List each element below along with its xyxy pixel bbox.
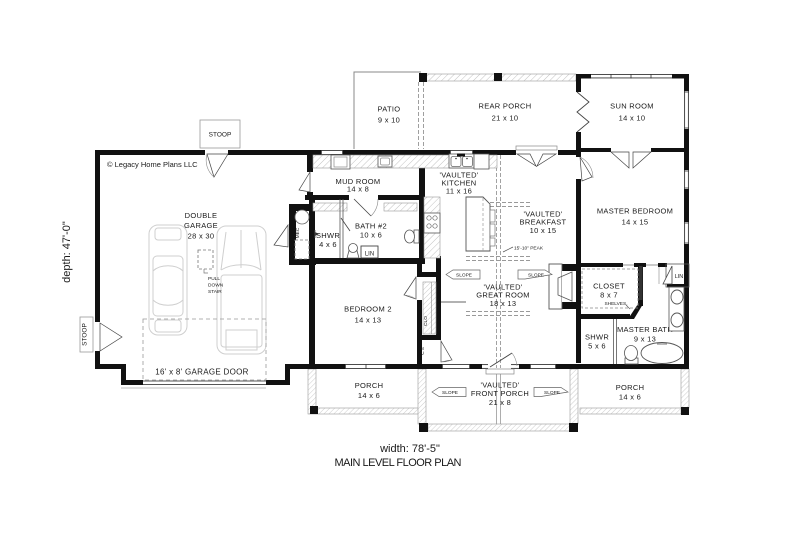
svg-text:8 x 7: 8 x 7 (600, 291, 618, 300)
svg-text:C'S: C'S (420, 347, 426, 355)
svg-text:© Legacy Home Plans LLC: © Legacy Home Plans LLC (107, 160, 198, 169)
svg-text:STAIR: STAIR (208, 289, 222, 295)
svg-text:MAIN LEVEL FLOOR PLAN: MAIN LEVEL FLOOR PLAN (335, 457, 462, 469)
svg-text:PATIO: PATIO (378, 105, 401, 114)
svg-text:BEDROOM 2: BEDROOM 2 (344, 305, 392, 314)
svg-text:GARAGE: GARAGE (184, 221, 218, 230)
svg-text:15'-10" PEAK: 15'-10" PEAK (514, 246, 544, 252)
svg-text:16' x 8' GARAGE DOOR: 16' x 8' GARAGE DOOR (155, 368, 249, 377)
svg-text:DOUBLE: DOUBLE (185, 211, 218, 220)
svg-text:depth: 47'-0": depth: 47'-0" (61, 221, 73, 283)
svg-text:SLOPE: SLOPE (544, 390, 560, 396)
svg-text:21 x 10: 21 x 10 (492, 114, 519, 123)
svg-text:21 x 8: 21 x 8 (489, 398, 511, 407)
svg-text:SLOPE: SLOPE (456, 272, 472, 278)
svg-text:4 x 6: 4 x 6 (319, 240, 337, 249)
svg-text:9 x 13: 9 x 13 (634, 335, 656, 344)
svg-text:14 x 15: 14 x 15 (622, 218, 649, 227)
svg-text:18 x 13: 18 x 13 (490, 299, 517, 308)
svg-text:14 x 6: 14 x 6 (358, 391, 380, 400)
svg-text:BATH #2: BATH #2 (355, 222, 387, 231)
svg-text:11 x 16: 11 x 16 (446, 187, 472, 196)
svg-text:width: 78'-5": width: 78'-5" (379, 443, 440, 455)
svg-text:STOOP: STOOP (82, 323, 89, 346)
svg-text:PULL: PULL (208, 276, 220, 282)
svg-text:14 x 6: 14 x 6 (619, 393, 641, 402)
svg-text:SLOPE: SLOPE (442, 390, 458, 396)
svg-text:CLO: CLO (423, 316, 429, 326)
svg-text:PORCH: PORCH (616, 383, 645, 392)
svg-text:SHWR: SHWR (316, 231, 340, 240)
svg-text:MEC: MEC (295, 227, 301, 238)
svg-text:14 x 13: 14 x 13 (355, 316, 382, 325)
svg-text:DOWN: DOWN (208, 283, 224, 289)
svg-text:SHELVES,: SHELVES, (604, 301, 627, 307)
svg-text:STOOP: STOOP (209, 132, 232, 139)
svg-text:REAR PORCH: REAR PORCH (478, 102, 531, 111)
svg-text:14 x 10: 14 x 10 (619, 114, 646, 123)
svg-text:FRONT PORCH: FRONT PORCH (471, 389, 529, 398)
svg-text:9 x 10: 9 x 10 (378, 116, 400, 125)
svg-text:14 x 8: 14 x 8 (347, 185, 369, 194)
svg-text:28 x 30: 28 x 30 (188, 232, 215, 241)
svg-text:SUN ROOM: SUN ROOM (610, 102, 654, 111)
svg-text:10 x 15: 10 x 15 (530, 226, 557, 235)
svg-text:SLOPE: SLOPE (528, 272, 544, 278)
svg-text:CLOSET: CLOSET (593, 282, 625, 291)
svg-text:LIN: LIN (675, 274, 684, 280)
svg-text:MASTER BEDROOM: MASTER BEDROOM (597, 207, 673, 216)
svg-text:MASTER BATH: MASTER BATH (617, 325, 673, 334)
svg-text:LIN: LIN (365, 252, 374, 258)
svg-text:10 x 6: 10 x 6 (360, 231, 382, 240)
svg-text:5 x 6: 5 x 6 (588, 342, 606, 351)
svg-text:PORCH: PORCH (355, 381, 384, 390)
svg-text:SHWR: SHWR (585, 333, 609, 342)
